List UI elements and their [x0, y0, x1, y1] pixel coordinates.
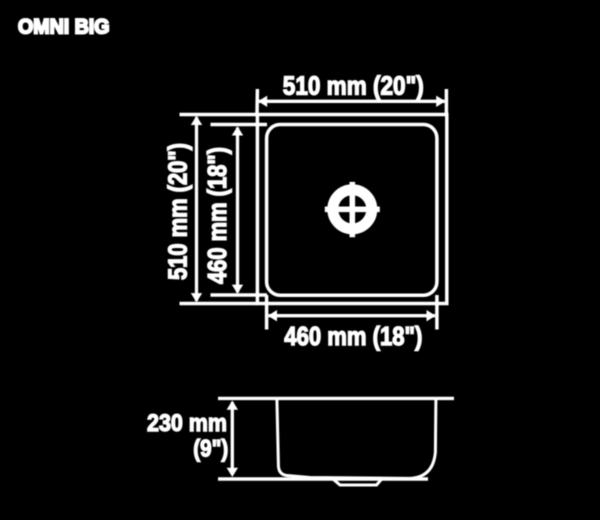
svg-text:510 mm (20"): 510 mm (20") — [283, 71, 424, 101]
svg-text:460 mm (18"): 460 mm (18") — [284, 321, 422, 351]
svg-text:230 mm: 230 mm — [147, 410, 227, 437]
svg-text:(9"): (9") — [193, 436, 228, 463]
svg-text:460 mm (18"): 460 mm (18") — [202, 147, 232, 284]
svg-text:OMNI BIG: OMNI BIG — [18, 15, 110, 39]
svg-text:510 mm (20"): 510 mm (20") — [162, 143, 192, 280]
